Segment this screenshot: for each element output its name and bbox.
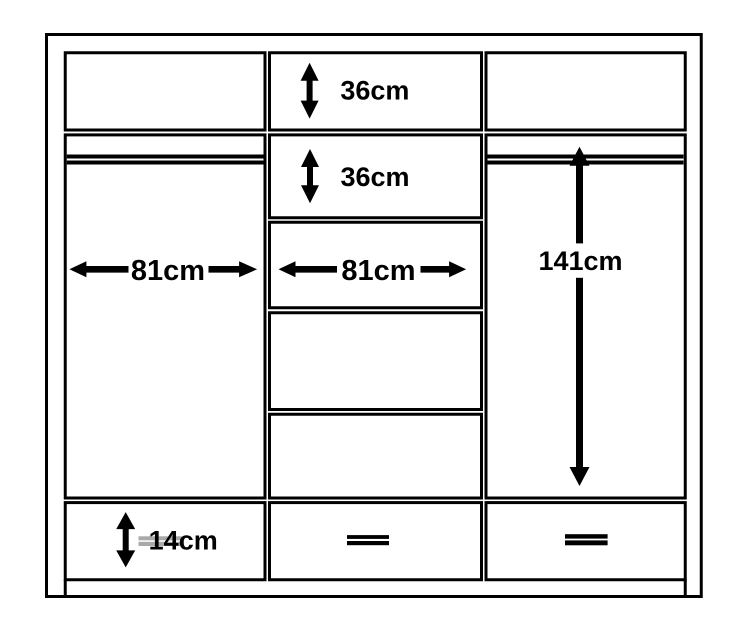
svg-text:81cm: 81cm bbox=[341, 255, 415, 287]
svg-text:36cm: 36cm bbox=[340, 162, 409, 192]
svg-text:141cm: 141cm bbox=[538, 246, 622, 276]
svg-text:14cm: 14cm bbox=[149, 526, 218, 556]
svg-text:81cm: 81cm bbox=[131, 255, 205, 287]
svg-text:36cm: 36cm bbox=[340, 76, 409, 106]
